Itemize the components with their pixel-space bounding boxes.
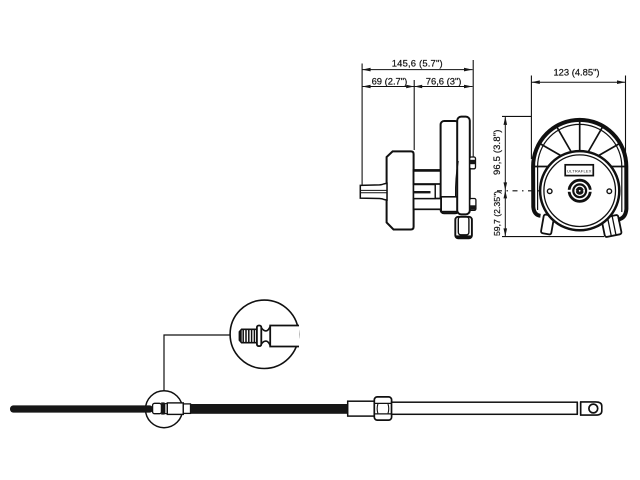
svg-text:96,5 (3.8"): 96,5 (3.8") [491,129,502,175]
svg-text:76,6 (3"): 76,6 (3") [426,75,462,86]
svg-text:145,6 (5.7"): 145,6 (5.7") [392,58,443,69]
svg-text:123 (4.85"): 123 (4.85") [553,67,599,78]
svg-text:69 (2.7"): 69 (2.7") [372,75,408,86]
svg-text:59,7 (2.35"): 59,7 (2.35") [492,191,502,236]
svg-text:ULTRAFLEX: ULTRAFLEX [567,168,592,173]
